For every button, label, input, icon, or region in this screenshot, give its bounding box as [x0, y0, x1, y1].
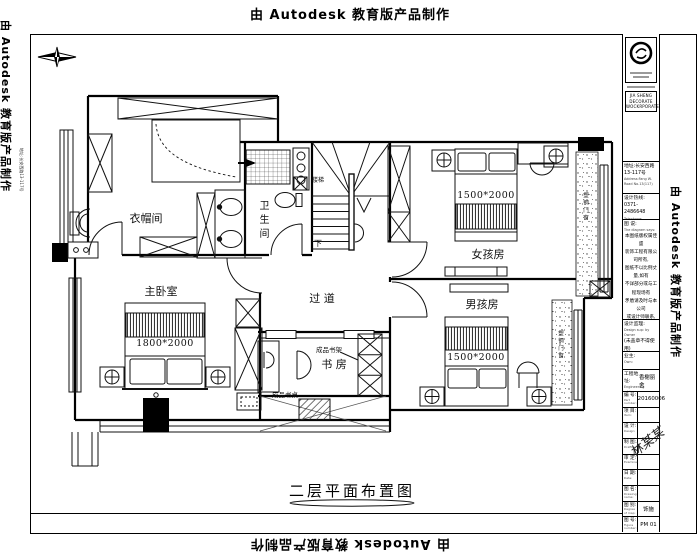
drawing-caption: 二层平面布置图	[252, 480, 452, 501]
room-label-boys-room: 男孩房	[452, 296, 512, 312]
floor-plan-linework	[0, 0, 700, 560]
logo-microtext	[633, 76, 649, 78]
table-row: 图 名:Drawing name:	[623, 486, 659, 502]
row-value: 20160006	[638, 392, 665, 407]
row-en: Date:	[624, 477, 637, 480]
north-compass-icon	[38, 47, 76, 67]
title-block-table: 编 号:Part number: 20160006 项 目:Item: 设 计:…	[623, 392, 659, 532]
table-row: 项 目:Item:	[623, 408, 659, 424]
title-block-notice: 图 说: The diagram says: 本图纸版权属佳盛 装饰工程有限公司…	[623, 220, 659, 320]
row-en: Item:	[624, 414, 637, 417]
stairs-label: 楼梯	[312, 175, 324, 184]
note-desk: 成品书桌	[272, 389, 298, 399]
table-row: 图 别:Degree of map: 饰施	[623, 502, 659, 518]
title-block-site: 工程地址: Engineering address: 香榭丽舍	[623, 370, 659, 392]
notice-line: 不详部分或与工程现场有	[624, 281, 658, 297]
room-label-master-bedroom: 主卧室	[131, 283, 191, 299]
phone-cn: 设计热线: 0371-2486648	[624, 195, 658, 217]
row-en: Examine:	[624, 461, 637, 464]
logo-box	[625, 37, 657, 83]
bed-dim-boy: 1500*2000	[436, 352, 516, 363]
girl-room-furniture	[388, 143, 568, 292]
room-label-study: 书 房	[304, 356, 364, 372]
skylight-dashed	[152, 120, 240, 182]
company-logo-icon	[628, 40, 654, 66]
note-window-girl: 塑钢门窗	[581, 192, 589, 222]
table-row: 日 期:Date:	[623, 470, 659, 486]
address-cn: 地址:长安西路13-117号	[624, 163, 658, 177]
address-en: Address:Fang W. Road No.13(117)	[624, 177, 658, 187]
column-black-topright	[578, 137, 604, 151]
row-en: Part number:	[624, 399, 637, 406]
column-black-left	[52, 243, 68, 262]
owner-en: Own:	[624, 360, 658, 365]
toilet	[275, 193, 302, 208]
row-en: Degree of map:	[624, 508, 637, 515]
logo-microtext	[630, 72, 652, 74]
drawing-sheet: 由 Autodesk 教育版产品制作 由 Autodesk 教育版产品制作 由 …	[0, 0, 700, 560]
row-value	[638, 408, 659, 423]
room-label-cloakroom: 衣帽间	[116, 210, 176, 226]
note-window-boy: 塑钢门窗	[556, 330, 564, 360]
diagram-label: 图 说:	[624, 221, 658, 228]
notice-line: 本图纸版权属佳盛	[624, 233, 658, 249]
table-row: 图 号:Figure number: PM 01	[623, 517, 659, 532]
site-label: 工程地址:	[624, 371, 639, 385]
row-value: PM 01	[638, 517, 659, 532]
company-name-box: JIA SHENG DECORATE WOCKRPORATERKS	[625, 91, 657, 112]
row-value	[638, 470, 659, 485]
logo-address-microtext	[627, 86, 655, 88]
stairs	[312, 142, 390, 250]
row-value	[638, 486, 659, 501]
notice-line: 装饰工程有限公司所有,	[624, 249, 658, 265]
row-en: Figure number:	[624, 524, 637, 531]
shower	[238, 150, 290, 184]
table-row: 编 号:Part number: 20160006	[623, 392, 659, 408]
supervisor-en: Design sup: by Owner	[624, 328, 658, 338]
room-label-corridor: 过 道	[292, 290, 352, 306]
study-hatch-cabinet	[299, 399, 330, 420]
stairs-down-label: 下	[314, 238, 322, 249]
switch-box	[68, 242, 98, 258]
bed-dim-master: 1800*2000	[125, 338, 205, 349]
row-en: Design:	[624, 430, 637, 433]
note-bookshelf: 成品书架	[316, 344, 342, 354]
room-label-bathroom: 卫生间	[255, 200, 270, 242]
piano-black	[143, 393, 169, 432]
room-label-girls-room: 女孩房	[458, 246, 518, 262]
company-name-line2: WOCKRPORATERKS	[626, 104, 656, 110]
stamp-note: (未盖章不得使用)	[624, 338, 658, 352]
balcony-hatch-girl	[576, 152, 598, 296]
master-furniture	[100, 299, 262, 410]
row-value: 饰施	[638, 502, 659, 517]
site-value: 香榭丽舍	[639, 371, 658, 390]
title-block-address: 地址:长安西路13-117号 Address:Fang W. Road No.1…	[623, 162, 659, 194]
site-en: Engineering address:	[624, 385, 639, 392]
owner-label: 业主:	[624, 353, 658, 360]
bed-dim-girl: 1500*2000	[446, 190, 526, 201]
company-name-line1: JIA SHENG DECORATE	[626, 93, 656, 104]
title-block-logo-section: JIA SHENG DECORATE WOCKRPORATERKS	[623, 34, 659, 162]
row-en: Drawing name:	[624, 493, 637, 500]
title-block-supervisor: 设计监理: Design sup: by Owner (未盖章不得使用) (No…	[623, 320, 659, 352]
notice-line: 图纸不以比例丈量,如有	[624, 265, 658, 281]
vanity-basins	[215, 190, 245, 258]
notice-line: 矛盾请及时与本公司	[624, 298, 658, 314]
title-block-phone: 设计热线: 0371-2486648 Telephone:	[623, 194, 659, 220]
title-block-owner: 业主: Own:	[623, 352, 659, 370]
supervisor-label: 设计监理:	[624, 321, 658, 328]
bath-shelf	[293, 148, 309, 190]
